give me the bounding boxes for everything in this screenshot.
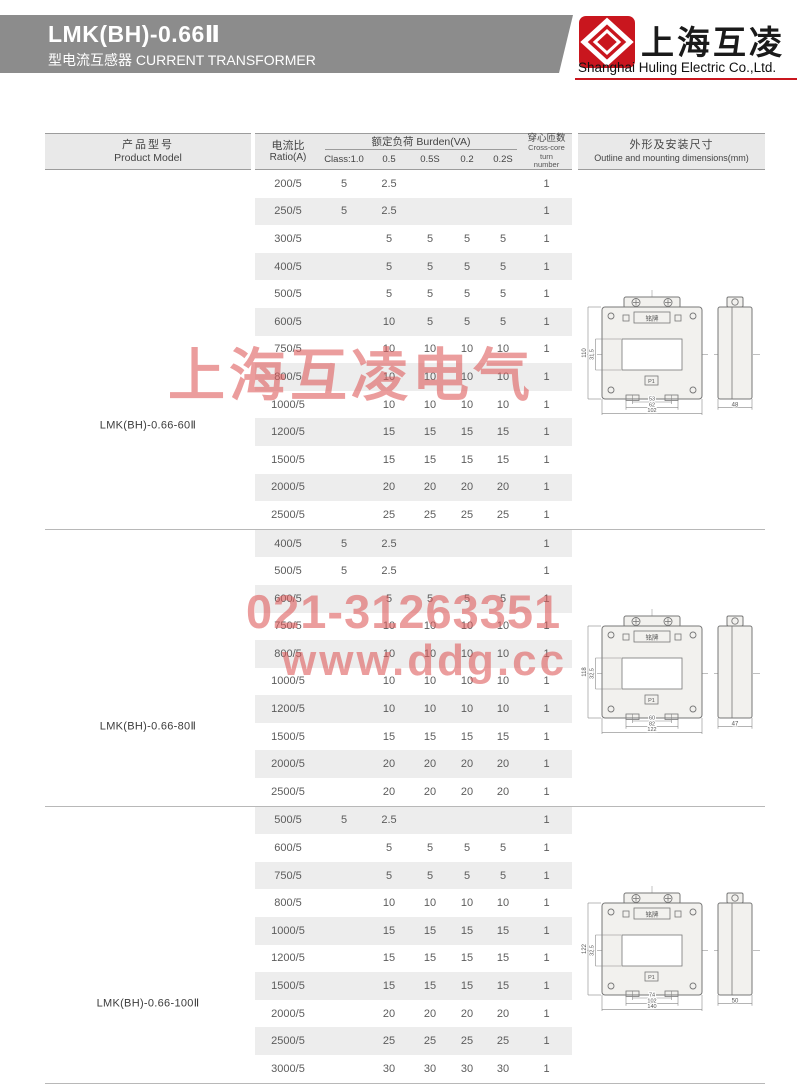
outline-drawing-cell: 铭牌P1 11031.5536210248 [578, 170, 765, 529]
table-row: 400/552.51 [255, 530, 572, 558]
ratio-cell: 500/5 [255, 565, 321, 577]
turns-cell: 1 [521, 593, 572, 605]
ratio-cell: 300/5 [255, 233, 321, 245]
burden-cell: 5 [411, 842, 449, 854]
burden-cell: 10 [411, 703, 449, 715]
burden-cell: 10 [367, 399, 411, 411]
header-band: LMK(BH)-0.66Ⅱ 型电流互感器 CURRENT TRANSFORMER [0, 15, 573, 73]
table-row: 200/552.51 [255, 170, 572, 198]
burden-cell: 2.5 [367, 565, 411, 577]
outline-drawing: 铭牌P1 12232.57410214050 [578, 879, 765, 1011]
burden-cell: 20 [449, 758, 485, 770]
burden-cell: 10 [367, 675, 411, 687]
nameplate-label: 铭牌 [646, 909, 660, 918]
table-row: 2000/5202020201 [255, 1000, 572, 1028]
turns-cell: 1 [521, 261, 572, 273]
table-body: LMK(BH)-0.66-60Ⅱ200/552.51250/552.51300/… [45, 170, 765, 1084]
burden-cell: 10 [449, 703, 485, 715]
burden-cell: 20 [411, 786, 449, 798]
bus-window [622, 339, 682, 370]
table-header: 产品型号 Product Model 电流比 Ratio(A) 额定负荷 Bur… [45, 133, 765, 170]
burden-cell: 15 [485, 426, 521, 438]
dim-height-label: 110 [582, 348, 588, 358]
burden-cell: 10 [367, 648, 411, 660]
burden-cell: 10 [485, 371, 521, 383]
turns-cell: 1 [521, 842, 572, 854]
ratio-cell: 400/5 [255, 538, 321, 550]
table-row: 500/552.51 [255, 557, 572, 585]
burden-cell: 15 [411, 454, 449, 466]
burden-cell: 15 [449, 925, 485, 937]
ratio-cell: 750/5 [255, 620, 321, 632]
col-header-burden: 额定负荷 Burden(VA) [325, 134, 517, 150]
table-row: 1500/5151515151 [255, 446, 572, 474]
turns-cell: 1 [521, 343, 572, 355]
burden-cell: 25 [485, 509, 521, 521]
brand-block: 上海互凌 Shanghai Huling Electric Co.,Ltd. [575, 8, 803, 86]
brand-name: 上海互凌 [641, 16, 785, 64]
table-row: 1200/5151515151 [255, 418, 572, 446]
product-group: LMK(BH)-0.66-80Ⅱ400/552.51500/552.51600/… [45, 529, 765, 806]
burden-cell: 20 [485, 1008, 521, 1020]
burden-cell: 5 [449, 842, 485, 854]
side-body [718, 903, 752, 995]
burden-cell: 15 [411, 952, 449, 964]
col-header-ratio: 电流比 Ratio(A) [255, 134, 321, 169]
ratio-cell: 2000/5 [255, 758, 321, 770]
turns-cell: 1 [521, 454, 572, 466]
turns-cell: 1 [521, 399, 572, 411]
burden-cell: 10 [411, 675, 449, 687]
table-row: 2500/5252525251 [255, 501, 572, 529]
ratio-cell: 750/5 [255, 343, 321, 355]
burden-cell: 15 [367, 980, 411, 992]
ratio-burden-rows: 200/552.51250/552.51300/555551400/555551… [255, 170, 572, 529]
bus-window [622, 935, 682, 966]
turns-cell: 1 [521, 565, 572, 577]
burden-cell: 5 [485, 870, 521, 882]
turns-cell: 1 [521, 980, 572, 992]
burden-cell: 20 [485, 786, 521, 798]
burden-cell: 10 [367, 703, 411, 715]
ratio-header-cn: 电流比 [272, 140, 305, 152]
burden-cell: 2.5 [367, 538, 411, 550]
table-row: 600/555551 [255, 585, 572, 613]
ratio-cell: 1200/5 [255, 426, 321, 438]
burden-cell: 15 [411, 980, 449, 992]
turns-header-en3: number [534, 161, 559, 170]
burden-cell: 10 [411, 343, 449, 355]
burden-cell: 10 [367, 620, 411, 632]
burden-cell: 25 [449, 1035, 485, 1047]
ratio-cell: 600/5 [255, 316, 321, 328]
ratio-cell: 1200/5 [255, 952, 321, 964]
ratio-cell: 800/5 [255, 371, 321, 383]
burden-cell: 10 [485, 897, 521, 909]
burden-cell: 5 [367, 870, 411, 882]
burden-cell: 25 [485, 1035, 521, 1047]
turns-cell: 1 [521, 288, 572, 300]
ratio-cell: 800/5 [255, 648, 321, 660]
table-row: 1000/5151515151 [255, 917, 572, 945]
side-body [718, 626, 752, 718]
burden-cell: 5 [321, 814, 367, 826]
burden-cell: 5 [367, 842, 411, 854]
dim-window-label: 32.5 [590, 945, 596, 956]
table-row: 1000/5101010101 [255, 391, 572, 419]
burden-cell: 10 [449, 675, 485, 687]
ratio-header-en: Ratio(A) [270, 152, 307, 164]
burden-cell: 15 [449, 426, 485, 438]
ratio-cell: 1500/5 [255, 731, 321, 743]
burden-cell: 15 [485, 454, 521, 466]
burden-cell: 20 [485, 758, 521, 770]
burden-cell: 15 [449, 454, 485, 466]
burden-cell: 20 [367, 786, 411, 798]
burden-cell: 20 [367, 758, 411, 770]
burden-cell: 5 [321, 565, 367, 577]
spec-table: 产品型号 Product Model 电流比 Ratio(A) 额定负荷 Bur… [45, 133, 765, 1084]
table-row: 250/552.51 [255, 198, 572, 226]
burden-cell: 20 [485, 481, 521, 493]
page-title: LMK(BH)-0.66Ⅱ [48, 21, 220, 48]
ratio-cell: 600/5 [255, 593, 321, 605]
ratio-cell: 2500/5 [255, 1035, 321, 1047]
burden-cell: 15 [485, 980, 521, 992]
burden-cell: 20 [449, 1008, 485, 1020]
dim-depth-label: 48 [732, 403, 739, 409]
turns-cell: 1 [521, 925, 572, 937]
turns-cell: 1 [521, 233, 572, 245]
burden-cell: 10 [411, 620, 449, 632]
page-subtitle: 型电流互感器 CURRENT TRANSFORMER [48, 50, 316, 70]
burden-cell: 15 [449, 952, 485, 964]
burden-cell: 15 [449, 980, 485, 992]
table-row: 800/5101010101 [255, 363, 572, 391]
turns-cell: 1 [521, 870, 572, 882]
ratio-cell: 2000/5 [255, 481, 321, 493]
burden-cell: 5 [485, 261, 521, 273]
nameplate-label: 铭牌 [646, 632, 660, 641]
col-header-class-0-2s: 0.2S [485, 150, 521, 169]
burden-cell: 10 [485, 703, 521, 715]
burden-cell: 30 [449, 1063, 485, 1075]
outline-drawing-cell: 铭牌P1 12232.57410214050 [578, 807, 765, 1083]
brand-underline [575, 78, 797, 80]
burden-cell: 25 [411, 509, 449, 521]
burden-cell: 25 [449, 509, 485, 521]
burden-cell: 15 [411, 731, 449, 743]
burden-cell: 10 [411, 371, 449, 383]
product-model-label: LMK(BH)-0.66-60Ⅱ [45, 418, 251, 431]
burden-cell: 30 [367, 1063, 411, 1075]
burden-cell: 5 [449, 593, 485, 605]
turns-cell: 1 [521, 952, 572, 964]
burden-cell: 15 [485, 925, 521, 937]
ratio-cell: 1200/5 [255, 703, 321, 715]
burden-cell: 25 [367, 1035, 411, 1047]
turns-cell: 1 [521, 703, 572, 715]
burden-cell: 5 [449, 870, 485, 882]
burden-cell: 25 [411, 1035, 449, 1047]
burden-cell: 10 [449, 399, 485, 411]
ratio-cell: 200/5 [255, 178, 321, 190]
p1-label: P1 [648, 698, 655, 704]
ratio-cell: 600/5 [255, 842, 321, 854]
table-row: 750/5101010101 [255, 336, 572, 364]
dim-window-label: 31.5 [590, 350, 596, 361]
burden-cell: 2.5 [367, 205, 411, 217]
burden-cell: 5 [321, 538, 367, 550]
turns-cell: 1 [521, 426, 572, 438]
burden-cell: 5 [411, 870, 449, 882]
table-row: 300/555551 [255, 225, 572, 253]
product-model-cell: LMK(BH)-0.66-60Ⅱ [45, 170, 251, 529]
table-row: 2000/5202020201 [255, 750, 572, 778]
burden-cell: 10 [411, 897, 449, 909]
table-row: 800/5101010101 [255, 889, 572, 917]
burden-cell: 15 [367, 952, 411, 964]
turns-cell: 1 [521, 538, 572, 550]
burden-cell: 10 [449, 371, 485, 383]
ratio-cell: 1000/5 [255, 675, 321, 687]
burden-cell: 2.5 [367, 814, 411, 826]
bus-window [622, 658, 682, 689]
ratio-cell: 500/5 [255, 814, 321, 826]
col-header-outline: 外形及安装尺寸 Outline and mounting dimensions(… [578, 133, 765, 170]
dim-depth-label: 50 [732, 998, 739, 1004]
burden-cell: 30 [485, 1063, 521, 1075]
ratio-cell: 800/5 [255, 897, 321, 909]
burden-cell: 5 [367, 233, 411, 245]
burden-cell: 5 [449, 316, 485, 328]
burden-cell: 5 [485, 233, 521, 245]
burden-cell: 5 [411, 288, 449, 300]
dim-window-label: 32.5 [590, 668, 596, 679]
dim-height-label: 118 [582, 666, 588, 676]
col-header-class-0-5: 0.5 [367, 150, 411, 169]
burden-cell: 10 [367, 316, 411, 328]
col-header-class-1-0: Class:1.0 [321, 150, 367, 169]
turns-cell: 1 [521, 731, 572, 743]
turns-cell: 1 [521, 481, 572, 493]
burden-cell: 10 [449, 897, 485, 909]
burden-cell: 5 [411, 316, 449, 328]
burden-cell: 5 [449, 288, 485, 300]
burden-cell: 20 [411, 758, 449, 770]
turns-cell: 1 [521, 371, 572, 383]
product-model-cell: LMK(BH)-0.66-80Ⅱ [45, 530, 251, 806]
outline-drawing: 铭牌P1 11031.5536210248 [578, 283, 765, 415]
burden-cell: 15 [367, 454, 411, 466]
table-row: 600/5105551 [255, 308, 572, 336]
burden-cell: 25 [367, 509, 411, 521]
product-model-label: LMK(BH)-0.66-80Ⅱ [45, 719, 251, 732]
burden-cell: 10 [367, 371, 411, 383]
burden-cell: 5 [485, 593, 521, 605]
ratio-cell: 500/5 [255, 288, 321, 300]
table-row: 2500/5202020201 [255, 778, 572, 806]
page: LMK(BH)-0.66Ⅱ 型电流互感器 CURRENT TRANSFORMER… [0, 0, 810, 1089]
dim-width-label: 122 [647, 727, 656, 733]
brand-subtitle: Shanghai Huling Electric Co.,Ltd. [578, 60, 776, 75]
burden-cell: 20 [367, 481, 411, 493]
ratio-cell: 1000/5 [255, 399, 321, 411]
dim-height-label: 122 [582, 943, 588, 954]
burden-cell: 20 [449, 481, 485, 493]
turns-cell: 1 [521, 758, 572, 770]
product-header-cn: 产品型号 [122, 139, 174, 152]
table-row: 2500/5252525251 [255, 1027, 572, 1055]
burden-cell: 5 [485, 316, 521, 328]
burden-cell: 30 [411, 1063, 449, 1075]
burden-cell: 5 [411, 261, 449, 273]
ratio-cell: 1500/5 [255, 454, 321, 466]
burden-cell: 10 [367, 343, 411, 355]
table-row: 750/5101010101 [255, 613, 572, 641]
burden-cell: 15 [367, 426, 411, 438]
table-row: 600/555551 [255, 834, 572, 862]
turns-cell: 1 [521, 1063, 572, 1075]
table-row: 3000/5303030301 [255, 1055, 572, 1083]
burden-cell: 15 [485, 731, 521, 743]
ratio-cell: 1500/5 [255, 980, 321, 992]
turns-cell: 1 [521, 620, 572, 632]
burden-cell: 5 [321, 205, 367, 217]
turns-cell: 1 [521, 178, 572, 190]
table-row: 1000/5101010101 [255, 668, 572, 696]
outline-drawing-cell: 铭牌P1 11832.5608212247 [578, 530, 765, 806]
table-row: 1500/5151515151 [255, 723, 572, 751]
burden-cell: 10 [485, 399, 521, 411]
p1-label: P1 [648, 975, 655, 981]
table-row: 1500/5151515151 [255, 972, 572, 1000]
table-row: 750/555551 [255, 862, 572, 890]
turns-cell: 1 [521, 316, 572, 328]
turns-cell: 1 [521, 648, 572, 660]
burden-cell: 5 [485, 842, 521, 854]
burden-cell: 5 [367, 261, 411, 273]
col-header-class-0-5s: 0.5S [411, 150, 449, 169]
col-header-middle: 电流比 Ratio(A) 额定负荷 Burden(VA) Class:1.0 0… [255, 133, 572, 170]
burden-cell: 15 [367, 925, 411, 937]
ratio-cell: 400/5 [255, 261, 321, 273]
turns-cell: 1 [521, 1035, 572, 1047]
dim-depth-label: 47 [732, 721, 739, 727]
p1-label: P1 [648, 379, 655, 385]
burden-cell: 10 [485, 620, 521, 632]
ratio-burden-rows: 500/552.51600/555551750/555551800/510101… [255, 807, 572, 1083]
ratio-burden-rows: 400/552.51500/552.51600/555551750/510101… [255, 530, 572, 806]
side-body [718, 307, 752, 399]
col-header-product-model: 产品型号 Product Model [45, 133, 251, 170]
burden-cell: 10 [411, 648, 449, 660]
burden-cell: 5 [411, 593, 449, 605]
product-header-en: Product Model [114, 152, 182, 165]
turns-cell: 1 [521, 897, 572, 909]
product-group: LMK(BH)-0.66-100Ⅱ500/552.51600/555551750… [45, 806, 765, 1083]
outline-header-en: Outline and mounting dimensions(mm) [594, 152, 749, 165]
outline-drawing: 铭牌P1 11832.5608212247 [578, 602, 765, 734]
turns-cell: 1 [521, 509, 572, 521]
burden-cell: 15 [485, 952, 521, 964]
product-model-cell: LMK(BH)-0.66-100Ⅱ [45, 807, 251, 1083]
burden-cell: 10 [449, 343, 485, 355]
burden-cell: 2.5 [367, 178, 411, 190]
turns-cell: 1 [521, 205, 572, 217]
burden-cell: 5 [367, 288, 411, 300]
burden-cell: 10 [485, 343, 521, 355]
nameplate-label: 铭牌 [646, 314, 660, 323]
ratio-cell: 250/5 [255, 205, 321, 217]
burden-cell: 20 [449, 786, 485, 798]
ratio-cell: 2500/5 [255, 509, 321, 521]
dim-width-label: 140 [647, 1004, 656, 1010]
burden-cell: 20 [367, 1008, 411, 1020]
burden-cell: 10 [485, 648, 521, 660]
table-row: 800/5101010101 [255, 640, 572, 668]
turns-cell: 1 [521, 675, 572, 687]
outline-header-cn: 外形及安装尺寸 [630, 139, 714, 152]
burden-cell: 5 [449, 233, 485, 245]
ratio-cell: 1000/5 [255, 925, 321, 937]
product-model-label: LMK(BH)-0.66-100Ⅱ [45, 996, 251, 1009]
burden-cell: 5 [411, 233, 449, 245]
table-row: 2000/5202020201 [255, 474, 572, 502]
burden-cell: 15 [411, 426, 449, 438]
burden-cell: 10 [449, 648, 485, 660]
burden-cell: 15 [449, 731, 485, 743]
dim-width-label: 102 [647, 408, 656, 414]
burden-cell: 10 [449, 620, 485, 632]
turns-cell: 1 [521, 786, 572, 798]
burden-cell: 15 [411, 925, 449, 937]
burden-cell: 20 [411, 481, 449, 493]
ratio-cell: 2000/5 [255, 1008, 321, 1020]
table-row: 500/555551 [255, 280, 572, 308]
burden-cell: 10 [411, 399, 449, 411]
table-row: 500/552.51 [255, 807, 572, 835]
ratio-cell: 3000/5 [255, 1063, 321, 1075]
burden-cell: 5 [321, 178, 367, 190]
burden-cell: 5 [485, 288, 521, 300]
burden-cell: 10 [367, 897, 411, 909]
product-group: LMK(BH)-0.66-60Ⅱ200/552.51250/552.51300/… [45, 170, 765, 529]
burden-cell: 20 [411, 1008, 449, 1020]
burden-cell: 5 [367, 593, 411, 605]
table-row: 1200/5151515151 [255, 945, 572, 973]
col-header-turns: 穿心匝数 Cross-core turn number [521, 134, 572, 169]
table-row: 1200/5101010101 [255, 695, 572, 723]
table-row: 400/555551 [255, 253, 572, 281]
col-header-class-0-2: 0.2 [449, 150, 485, 169]
ratio-cell: 2500/5 [255, 786, 321, 798]
burden-cell: 10 [485, 675, 521, 687]
turns-cell: 1 [521, 1008, 572, 1020]
burden-cell: 15 [367, 731, 411, 743]
turns-cell: 1 [521, 814, 572, 826]
burden-cell: 5 [449, 261, 485, 273]
ratio-cell: 750/5 [255, 870, 321, 882]
